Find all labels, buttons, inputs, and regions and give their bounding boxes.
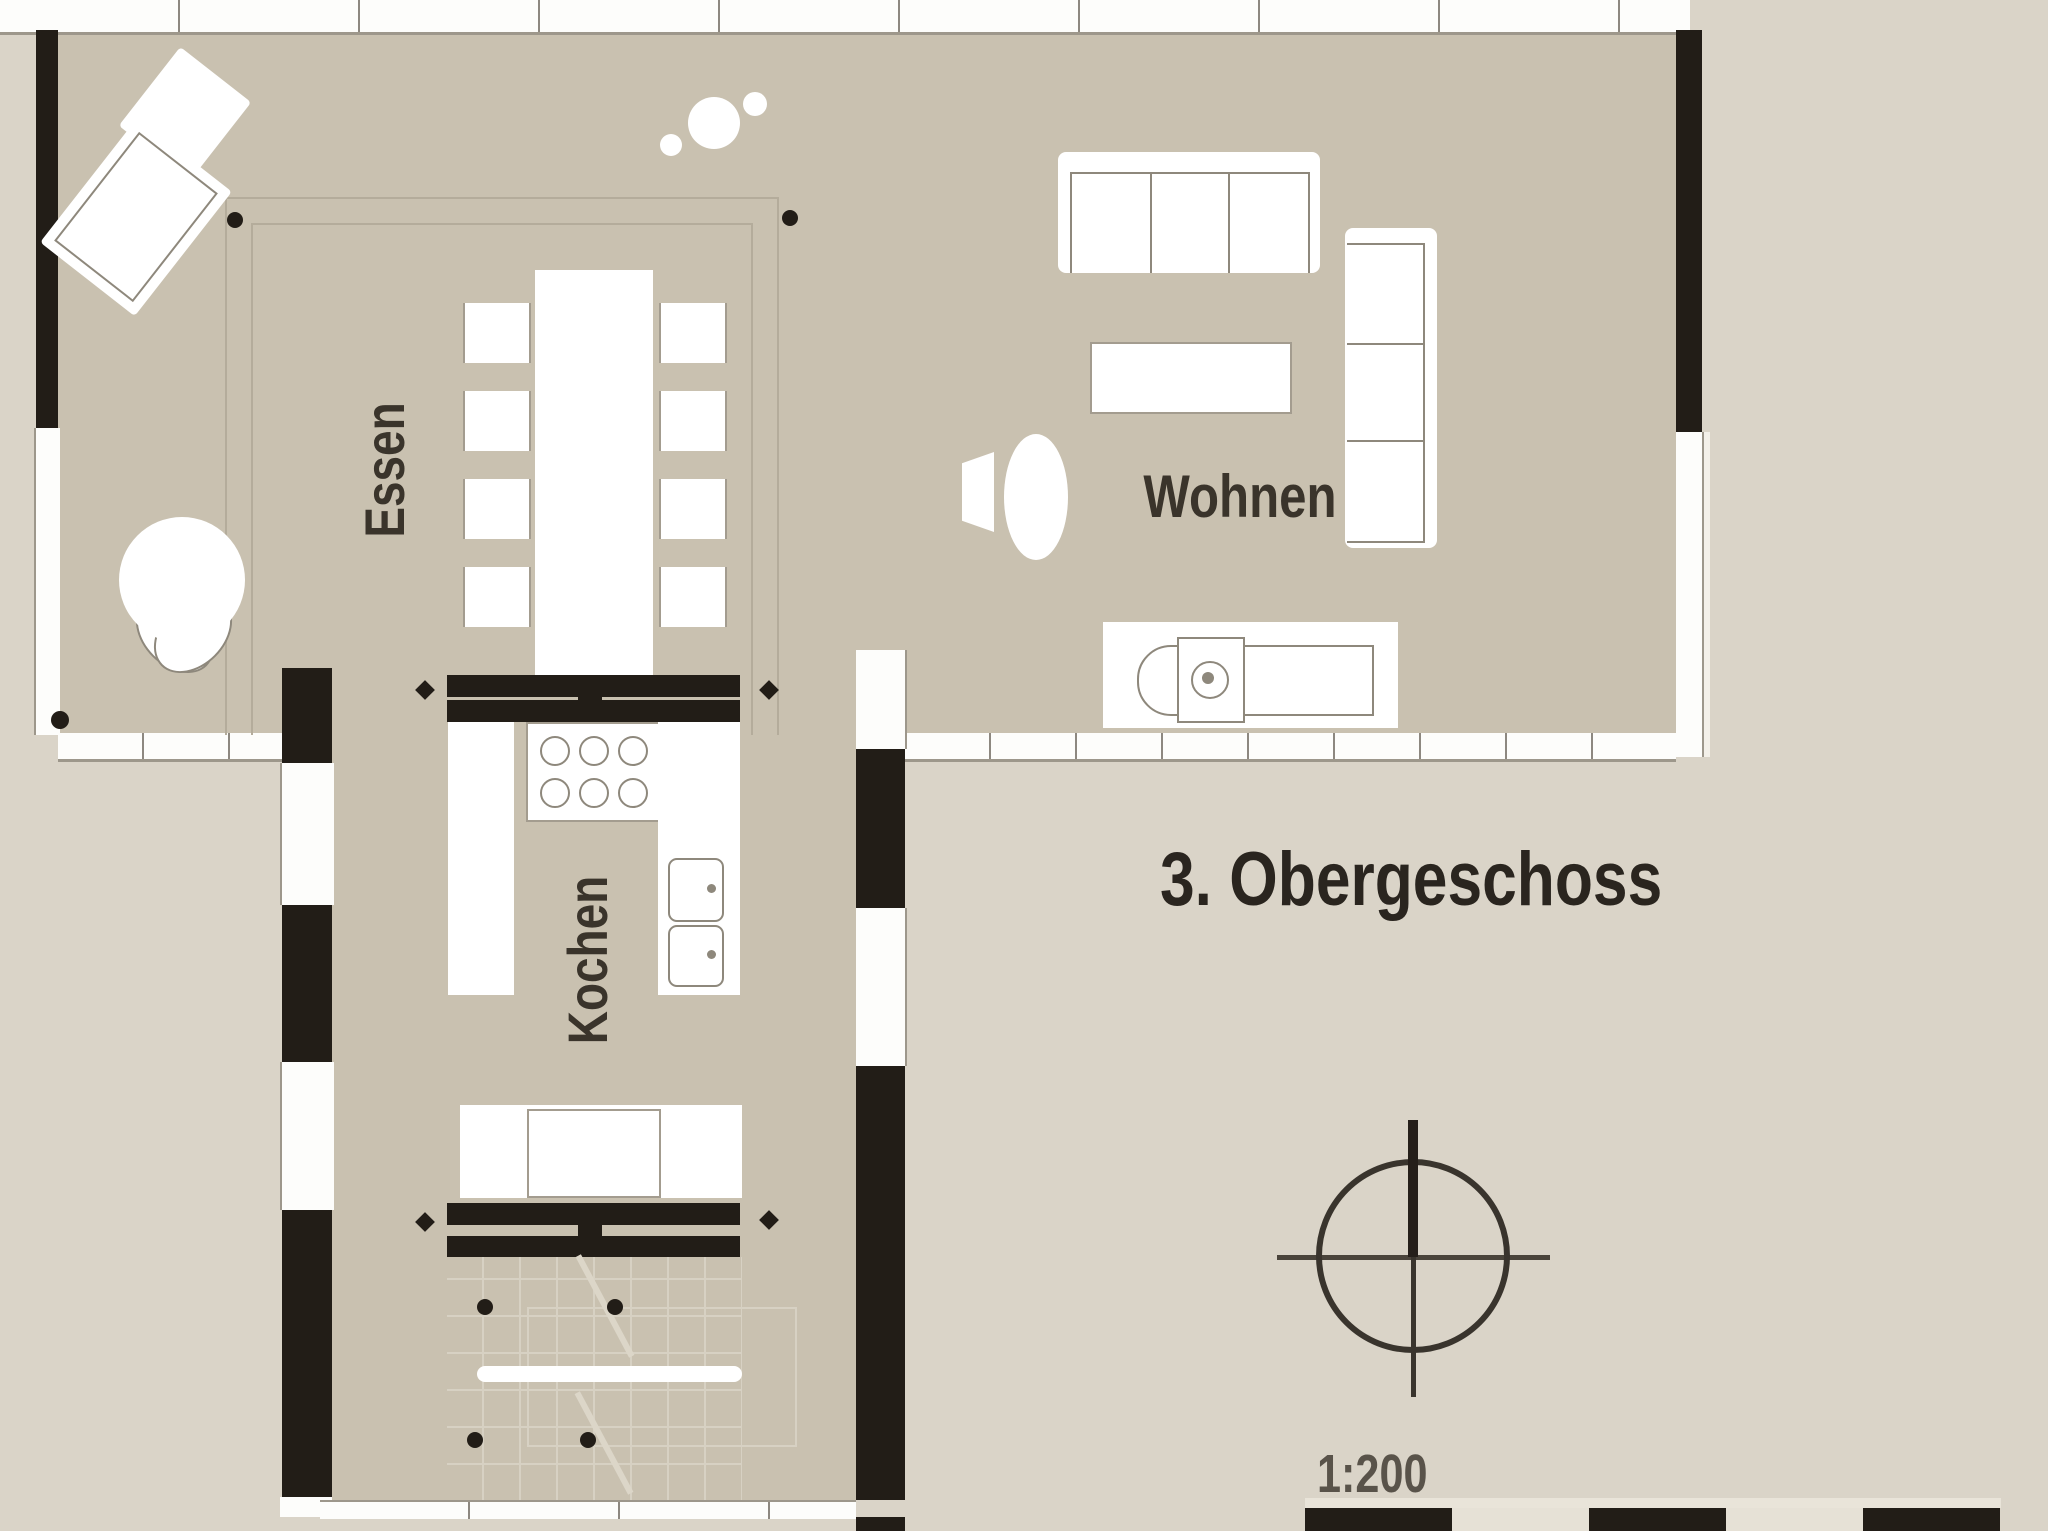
kitchen-bottom-wall-connector	[578, 1203, 602, 1258]
kitchen-bottom-wall-bar	[447, 1236, 578, 1258]
dining-chair	[659, 303, 727, 363]
cooktop	[526, 722, 662, 822]
kitchen-right-window	[856, 650, 907, 749]
sofa-divider	[1150, 174, 1152, 273]
dining-chair	[659, 479, 727, 539]
kitchen-top-wall-connector	[578, 675, 602, 722]
sofa-vertical-seat-outline	[1347, 243, 1425, 543]
round-table	[119, 517, 245, 643]
floor-lamp-shade-icon	[1004, 434, 1068, 560]
kitchen-left-wall-segment	[282, 668, 332, 763]
sofa-divider	[1228, 174, 1230, 273]
sofa-vertical	[1345, 228, 1437, 548]
right-window-outer-frame	[1704, 432, 1710, 757]
dining-chair	[659, 567, 727, 627]
left-window-band	[34, 428, 60, 735]
kitchen-counter-left	[448, 722, 514, 995]
sink-basin	[668, 925, 724, 987]
scale-bar-segment	[1305, 1508, 1452, 1531]
sideboard-inner-outline	[527, 1109, 661, 1198]
dining-chair	[463, 391, 531, 451]
kitchen-left-wall-segment	[282, 1210, 332, 1497]
dining-chair	[463, 303, 531, 363]
kitchen-right-wall-segment	[856, 1517, 905, 1531]
scale-bar-segment	[1589, 1508, 1726, 1531]
dining-chair	[463, 567, 531, 627]
kitchen-top-wall-bar	[602, 675, 740, 697]
room-label-living: Wohnen	[1143, 467, 1336, 527]
plant-icon-small	[743, 92, 767, 116]
burner-icon	[618, 778, 648, 808]
floor-plan: Essen Wohnen	[0, 0, 2048, 1531]
dining-chair	[463, 479, 531, 539]
bottom-window-band-right	[905, 733, 1676, 762]
room-label-kitchen: Kochen	[560, 876, 616, 1044]
column-dot-stair	[477, 1299, 493, 1315]
stove-unit-body	[1137, 645, 1374, 716]
kitchen-top-wall-bar	[447, 675, 578, 697]
sofa-divider	[1347, 343, 1423, 345]
plant-icon	[688, 97, 740, 149]
stair-landing-bar	[477, 1366, 742, 1382]
burner-icon	[540, 778, 570, 808]
burner-icon	[579, 778, 609, 808]
stove-unit-knob	[1202, 672, 1214, 684]
scale-bar-segment	[1452, 1508, 1589, 1531]
scale-label: 1:200	[1317, 1447, 1428, 1501]
room-label-dining: Essen	[357, 402, 413, 537]
kitchen-right-wall-segment	[856, 749, 905, 908]
dining-chair	[659, 391, 727, 451]
sofa-horizontal	[1058, 152, 1320, 273]
right-window-band	[1676, 432, 1704, 757]
plant-icon-small2	[660, 134, 682, 156]
scale-bar-segment	[1726, 1508, 1863, 1531]
scale-bar-light-edge	[1305, 1498, 2001, 1508]
column-dot-platform-left	[227, 212, 243, 228]
sofa-divider	[1347, 440, 1423, 442]
kitchen-right-window	[856, 908, 907, 1066]
coffee-table	[1090, 342, 1292, 414]
sink-drain-icon	[707, 950, 716, 959]
top-facade-window-band	[0, 0, 1690, 35]
dining-table	[535, 270, 653, 676]
floor-lamp-cone-icon	[962, 452, 994, 532]
kitchen-bottom-wall-bar	[602, 1236, 740, 1258]
sink-drain-icon	[707, 884, 716, 893]
column-dot-platform-right	[782, 210, 798, 226]
column-dot-corner-left	[51, 711, 69, 729]
kitchen-left-window	[280, 763, 334, 905]
burner-icon	[540, 736, 570, 766]
column-dot-stair	[467, 1432, 483, 1448]
sofa-horizontal-seat-outline	[1070, 172, 1310, 273]
kitchen-left-window	[280, 1062, 334, 1210]
plan-title: 3. Obergeschoss	[1160, 842, 1662, 918]
kitchen-left-wall-segment	[282, 905, 332, 1062]
bottom-window-band-left	[58, 733, 282, 762]
north-indicator-needle-thick	[1408, 1120, 1418, 1257]
right-wall-black-segment	[1676, 30, 1702, 432]
north-indicator-needle-thin	[1411, 1257, 1416, 1397]
burner-icon	[579, 736, 609, 766]
sink-basin	[668, 858, 724, 922]
column-dot-stair	[580, 1432, 596, 1448]
kitchen-bottom-window-band	[320, 1500, 856, 1519]
column-dot-stair	[607, 1299, 623, 1315]
burner-icon	[618, 736, 648, 766]
kitchen-right-wall-segment	[856, 1066, 905, 1500]
scale-bar-segment	[1863, 1508, 2000, 1531]
